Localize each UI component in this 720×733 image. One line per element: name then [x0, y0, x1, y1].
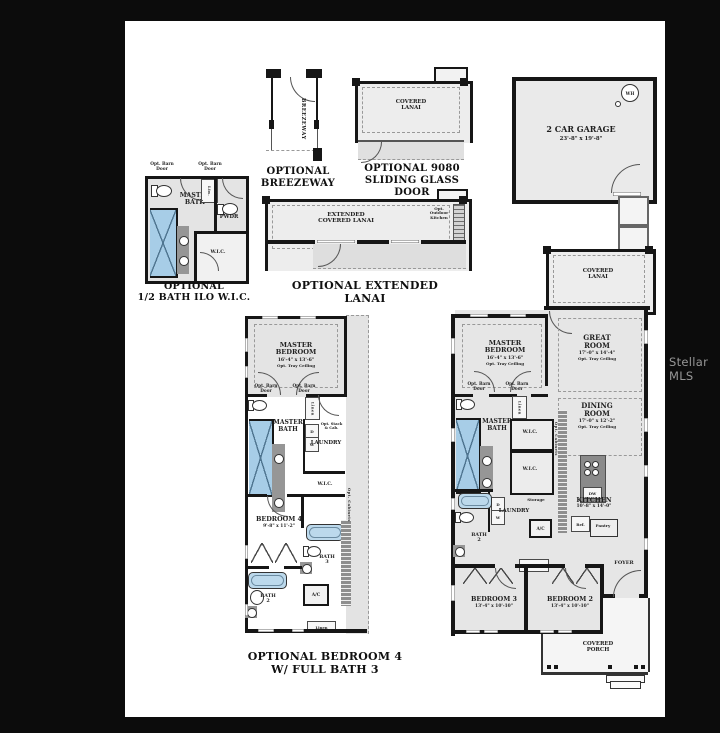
caption-breezeway: OPTIONAL BREEZEWAY — [252, 166, 344, 190]
window — [451, 338, 455, 354]
porch-column — [608, 665, 612, 669]
porch-column — [641, 665, 645, 669]
window — [644, 465, 648, 477]
cooktop-burner — [584, 469, 591, 476]
wall — [313, 148, 322, 161]
door-jamb — [314, 120, 319, 129]
wall — [245, 566, 269, 569]
room-label-dining-room: DINING ROOM — [568, 402, 626, 418]
floor-drain — [615, 101, 621, 107]
cooktop-burner — [592, 461, 599, 468]
toilet-icon — [460, 399, 475, 410]
room-label-covered-porch: COVERED PORCH — [566, 641, 630, 653]
wall — [453, 394, 473, 397]
wall — [247, 394, 267, 397]
closet-mark — [475, 568, 487, 584]
label-tray-ceiling: Opt. Tray Ceiling — [256, 364, 336, 368]
closet-mark — [501, 568, 513, 584]
wall — [303, 494, 345, 497]
window — [317, 240, 355, 243]
window — [466, 630, 480, 633]
closet-mark — [563, 568, 574, 584]
wall — [316, 76, 318, 124]
linen-cabinet: Linen — [512, 396, 527, 419]
barn-door-label: Opt. Barn Door — [463, 382, 495, 391]
window — [245, 604, 248, 616]
sink-icon — [179, 236, 189, 246]
vanity-counter — [177, 226, 189, 274]
room-label-pantry: Pantry — [590, 524, 616, 528]
cut-line — [266, 150, 320, 151]
room-label-wic: W.I.C. — [512, 430, 548, 435]
window — [292, 629, 304, 632]
room-label-laundry: LAUNDRY — [496, 508, 532, 514]
room-label-garage: 2 CAR GARAGE — [546, 125, 616, 134]
walkway-step — [618, 196, 649, 226]
barn-door-label: Opt. Barn Door — [501, 382, 533, 391]
corner-post — [262, 196, 270, 204]
room-label-wic: W.I.C. — [308, 482, 342, 487]
floor-plan-sheet-stage: Stellar MLS Opt. Barn Door Opt. Barn Doo… — [0, 0, 720, 733]
closet-mark — [262, 543, 273, 563]
corner-post — [645, 246, 653, 254]
window — [258, 629, 274, 632]
closet-mark — [286, 543, 297, 563]
label-tray-ceiling: Opt. Tray Ceiling — [568, 425, 626, 429]
barn-door-label: Opt. Barn Door — [144, 163, 180, 173]
covered-porch — [603, 598, 650, 672]
room-label-master-bedroom: MASTER BEDROOM — [256, 342, 336, 357]
window — [644, 418, 648, 432]
wall — [451, 314, 548, 318]
sink-icon — [247, 608, 257, 618]
window — [451, 428, 455, 442]
closet-mark — [463, 568, 475, 584]
corner-post — [352, 78, 360, 86]
room-label-bath2: BATH 2 — [254, 594, 282, 605]
label-opt-cabinets: Opt. Cabinets — [342, 488, 351, 522]
porch-column — [634, 665, 638, 669]
wall — [245, 494, 267, 497]
label-opt-stack: Opt. Stack & Cab. — [318, 422, 345, 430]
window — [245, 545, 248, 559]
cooktop-burner — [584, 461, 591, 468]
closet-mark — [576, 568, 587, 584]
water-heater: WH — [621, 84, 639, 102]
wall — [531, 394, 548, 397]
room-label-foyer: FOYER — [604, 561, 644, 567]
closet-mark — [489, 568, 501, 584]
refrigerator: Ref. — [571, 516, 590, 532]
closet-mark — [552, 568, 563, 584]
closet-mark — [587, 568, 598, 584]
window — [451, 585, 455, 601]
cooktop-burner — [592, 469, 599, 476]
barn-door-label: Opt. Barn Door — [192, 163, 228, 173]
window — [300, 316, 316, 319]
toilet-icon — [156, 185, 172, 197]
dim-label-garage: 23'-8" x 19'-8" — [546, 136, 616, 142]
wall — [265, 240, 315, 244]
wall — [271, 76, 273, 124]
window — [391, 240, 419, 243]
caption-bedroom4: OPTIONAL BEDROOM 4 W/ FULL BATH 3 — [240, 650, 410, 676]
caption-half-bath: OPTIONAL 1/2 BATH ILO W.I.C. — [134, 281, 254, 304]
label-tray-ceiling: Opt. Tray Ceiling — [568, 357, 626, 361]
window — [451, 498, 455, 510]
room-label-laundry: LAUNDRY — [308, 440, 344, 446]
window — [644, 330, 648, 344]
window — [470, 314, 488, 317]
corner-post — [460, 78, 468, 86]
porch-column — [554, 665, 558, 669]
corner-post — [543, 246, 551, 254]
wic-room — [510, 451, 554, 495]
ac-closet: A/C — [303, 584, 329, 606]
wall — [266, 69, 281, 78]
wall — [303, 471, 345, 474]
entry-step — [610, 681, 641, 689]
window — [540, 630, 554, 633]
ac-closet: A/C — [529, 519, 552, 538]
wall — [453, 489, 493, 492]
room-label-bedroom2: BEDROOM 2 — [536, 596, 604, 603]
dim-label: 10'-8" x 14'-0" — [566, 505, 622, 510]
window — [484, 630, 498, 633]
sink-icon — [179, 256, 189, 266]
bathtub-icon — [248, 572, 287, 589]
dim-label: 9'-8" x 11'-2" — [250, 525, 308, 530]
sink-icon — [274, 454, 284, 464]
bathtub-icon — [306, 524, 344, 541]
label-storage: Storage — [522, 498, 550, 502]
room-label-extended-lanai: EXTENDED COVERED LANAI — [300, 212, 392, 225]
window — [245, 338, 248, 352]
room-label-bedroom3: BEDROOM 3 — [462, 596, 526, 603]
wall — [301, 494, 304, 528]
bathtub-icon — [458, 493, 492, 509]
dim-label: 13'-4" x 10'-10" — [536, 605, 604, 610]
sink-icon — [482, 456, 492, 466]
label-tray-ceiling: Opt. Tray Ceiling — [473, 362, 537, 366]
label-opt-cabinets: Opt. Cabinets — [549, 418, 558, 460]
room-label-covered-lanai: COVERED LANAI — [382, 99, 440, 111]
room-label-great-room: GREAT ROOM — [568, 334, 626, 350]
kitchen-counter — [341, 520, 351, 606]
room-label-bath3: BATH 3 — [314, 555, 340, 566]
dim-label: 13'-4" x 10'-10" — [462, 605, 526, 610]
corner-post — [459, 196, 467, 204]
sink-icon — [302, 564, 312, 574]
toilet-icon — [459, 512, 474, 523]
wall — [271, 129, 272, 151]
wall — [544, 306, 650, 310]
wall — [545, 314, 548, 386]
room-label-pwdr: PWDR — [214, 215, 244, 221]
sink-icon — [455, 547, 465, 557]
shower-pan — [150, 208, 178, 278]
room-label-breezeway: BREEZEWAY — [293, 90, 305, 148]
window — [644, 538, 648, 550]
stellar-mls-watermark: Stellar MLS — [669, 355, 720, 383]
window — [245, 366, 248, 378]
door-jamb — [269, 120, 274, 129]
kitchen-counter — [558, 410, 567, 533]
label-outdoor-kitchen: Opt. Outdoor Kitchen — [424, 207, 454, 220]
toilet-icon — [252, 400, 267, 411]
wall — [644, 306, 648, 598]
window — [510, 314, 526, 317]
sink-icon — [482, 478, 492, 488]
wall — [284, 566, 302, 569]
closet-mark — [275, 543, 286, 563]
barn-door-label: Opt. Barn Door — [250, 384, 282, 393]
caption-extended-lanai: OPTIONAL EXTENDED LANAI — [280, 279, 450, 305]
barn-door-label: Opt. Barn Door — [288, 384, 320, 393]
closet-mark — [251, 543, 262, 563]
room-label-covered-lanai: COVERED LANAI — [570, 268, 626, 280]
porch-column — [547, 665, 551, 669]
room-label-bath2: BATH 2 — [466, 533, 492, 544]
room-label-master-bedroom: MASTER BEDROOM — [473, 340, 537, 355]
room-label-bedroom4: BEDROOM 4 — [250, 516, 308, 523]
window — [262, 316, 278, 319]
window — [558, 630, 572, 633]
room-label-wic: W.I.C. — [512, 467, 548, 472]
